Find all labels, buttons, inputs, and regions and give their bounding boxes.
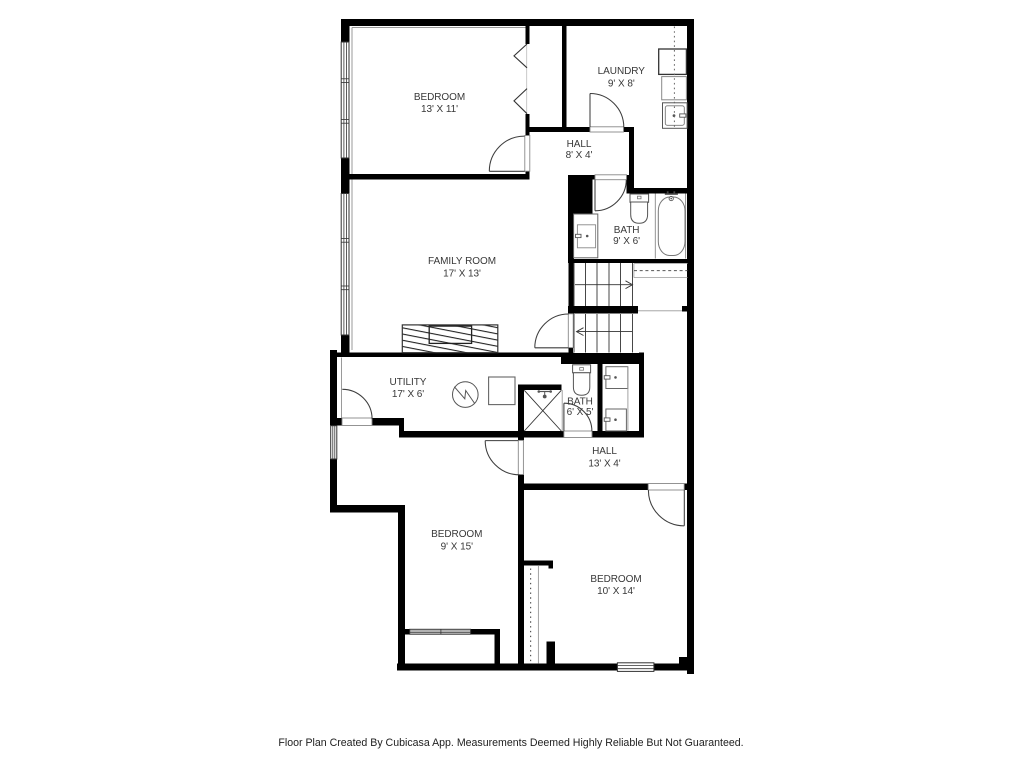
- svg-text:13' X 11': 13' X 11': [421, 104, 458, 115]
- svg-text:6' X 5': 6' X 5': [567, 407, 594, 418]
- svg-text:9' X 15': 9' X 15': [441, 542, 473, 553]
- svg-text:HALL: HALL: [592, 446, 617, 457]
- svg-text:9' X 8': 9' X 8': [608, 79, 635, 90]
- svg-text:HALL: HALL: [567, 139, 592, 150]
- svg-text:BATH: BATH: [567, 396, 593, 407]
- svg-text:BATH: BATH: [614, 225, 640, 236]
- svg-text:LAUNDRY: LAUNDRY: [598, 66, 646, 77]
- svg-text:BEDROOM: BEDROOM: [414, 92, 465, 103]
- svg-text:Floor Plan Created By Cubicasa: Floor Plan Created By Cubicasa App. Meas…: [278, 737, 743, 749]
- svg-text:UTILITY: UTILITY: [390, 377, 427, 388]
- svg-text:9' X 6': 9' X 6': [613, 236, 640, 247]
- svg-text:10' X 14': 10' X 14': [597, 586, 635, 597]
- svg-text:BEDROOM: BEDROOM: [431, 529, 482, 540]
- svg-text:8' X 4': 8' X 4': [566, 150, 593, 161]
- svg-text:13' X 4': 13' X 4': [588, 458, 620, 469]
- svg-text:FAMILY ROOM: FAMILY ROOM: [428, 256, 496, 267]
- svg-text:17' X 6': 17' X 6': [392, 389, 424, 400]
- svg-text:BEDROOM: BEDROOM: [590, 574, 641, 585]
- svg-text:17' X 13': 17' X 13': [443, 268, 481, 279]
